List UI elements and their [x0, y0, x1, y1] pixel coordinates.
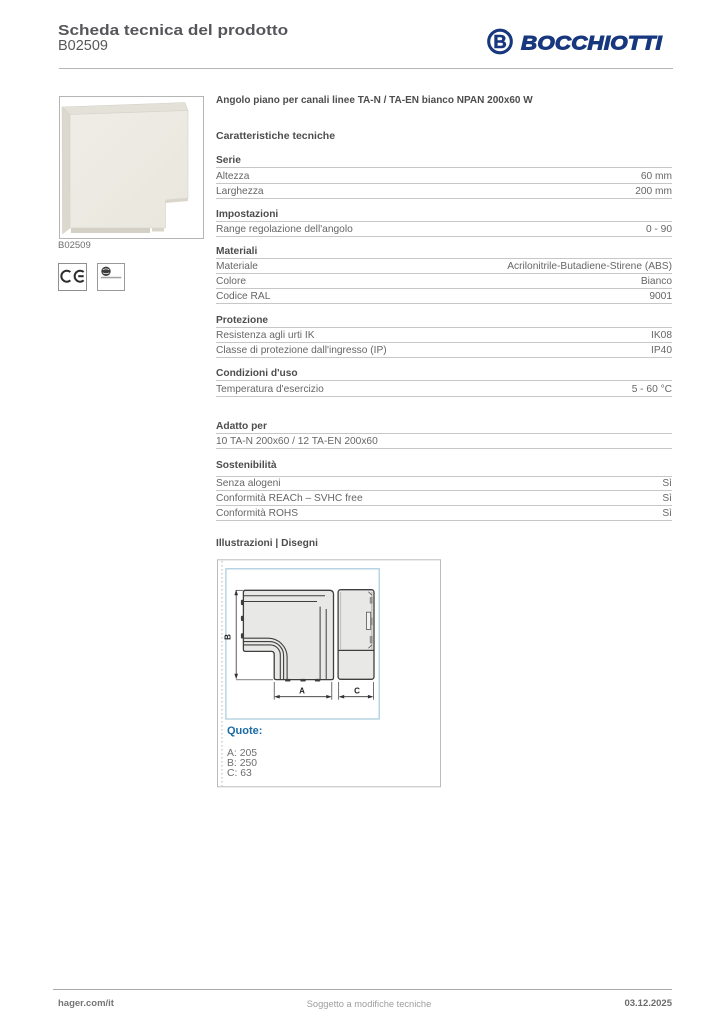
svg-text:B: B [493, 31, 506, 52]
svg-text:B: B [224, 634, 233, 640]
svg-text:A: A [299, 687, 305, 696]
svg-text:BOCCHIOTTI: BOCCHIOTTI [521, 32, 662, 54]
svg-text:C: C [354, 687, 360, 696]
